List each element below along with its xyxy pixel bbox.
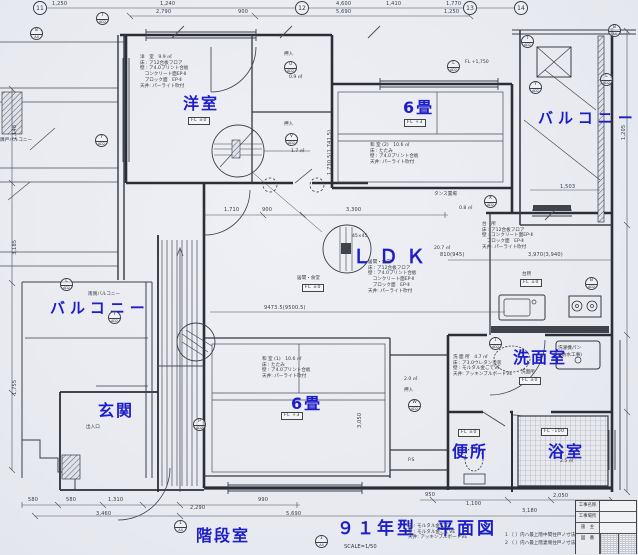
dim: 9473.5(9500.5) (264, 306, 306, 312)
dim: 1,250 (444, 10, 459, 16)
fl-washitsu1: FL +3 (281, 412, 303, 420)
title-block-stamps (618, 534, 636, 554)
symbol-closet-w: WAD2 (408, 399, 421, 412)
symbol-x: XAD2 (484, 195, 497, 208)
stove (569, 296, 601, 317)
fl-ldk: FL ±0 (302, 284, 324, 292)
fl-bath: FL -100 (541, 428, 568, 436)
dim: 1,240 (160, 2, 175, 8)
text-oshiire-v: 押入 (284, 122, 293, 127)
dim-rotated: 3,185 (13, 240, 19, 255)
dim: 2,290 (190, 506, 205, 512)
dim: 1,770 (446, 2, 461, 8)
symbol-y3: YAD2 (108, 311, 121, 324)
dim: 1,100 (466, 502, 481, 508)
symbol-8: 8A4 (30, 27, 43, 40)
dim-rotated: 1,205 (622, 125, 628, 140)
symbol-closet-v: VAD2 (285, 133, 298, 146)
text-tansu: タンス置場 (434, 192, 457, 197)
kitchen-counter (491, 326, 609, 333)
symbol-i2: IAD2 (521, 35, 534, 48)
balcony-right (512, 30, 636, 225)
note-senmen: 洗 面 所 4.7 ㎡ 床 : ア3.0ウレタン塗装 壁 : モルタル金ごてVE… (453, 355, 523, 378)
dim: 900 (238, 10, 248, 16)
dim: 2,050 (553, 494, 568, 500)
dim: 3,300 (346, 208, 361, 214)
area-bath: 2.5 ㎡ (560, 459, 573, 464)
dim: 580 (66, 498, 76, 504)
text-sentakuki: 洗濯機パン (558, 346, 581, 351)
symbol-i1: IAD2 (96, 12, 109, 25)
dim: 580 (28, 498, 38, 504)
dim: 3,460 (96, 512, 111, 518)
title-block: 工事名称 工事場所 施 主 図 番 (575, 500, 637, 554)
symbol-y2: YAD2 (529, 81, 542, 94)
detail-callouts (177, 125, 371, 361)
dim-rotated: 1,730.5(1,741.5) (328, 130, 334, 175)
label-washitsu2: 6畳 (403, 99, 434, 117)
title-block-row-label: 工事名称 (576, 501, 600, 511)
dim: 4,600 (336, 2, 351, 8)
dim: 1,310 (108, 498, 123, 504)
title-block-row-label: 工事場所 (576, 512, 600, 522)
dim: 3,970(3,940) (528, 253, 563, 259)
symbol-t: TAD2 (489, 337, 502, 350)
area-oshiire-v: 1.7 ㎡ (291, 149, 304, 154)
dim: 5,690 (286, 512, 301, 518)
text-oshiire-u: 押入 (284, 52, 293, 57)
symbol-l3: LAD2 (60, 278, 73, 291)
neighbor-unit-lines (0, 42, 126, 266)
dim: 3,180 (522, 509, 537, 515)
note-stair-spec: 床 : モルタル金ごて 壁 : モルタル金ごてVE 天井: アッキンブルボードV… (408, 524, 498, 541)
grid-ref-11: 11 (33, 1, 47, 15)
title-block-row-label: 施 主 (576, 523, 600, 533)
dim: 2,790 (156, 10, 171, 16)
symbol-y1: YAD2 (95, 134, 108, 147)
label-balcony-left: バルコニー (50, 300, 150, 317)
note-yoshitsu: 洋 室 9.9 ㎡ 床 : ア12合板フロア 壁 : ア4.0プリント合板 コン… (140, 55, 235, 89)
area-oshiire-u: 0.9 ㎡ (289, 75, 302, 80)
label-yoshitsu: 洋室 (183, 95, 219, 113)
text-oshiire-w: 押入 (404, 388, 413, 393)
dim: 1,250 (52, 2, 67, 8)
dim: 900 (262, 208, 272, 214)
grid-ref-12: 12 (295, 1, 309, 15)
text-deiriguchi: 出入口 (86, 425, 100, 430)
area-oshiire-w: 2.0 ㎡ (404, 377, 417, 382)
fl-balcony-note: FL +1,750 (465, 60, 489, 65)
text-minami-balcony: 南側バルコニー (88, 292, 120, 297)
text-ima-shokudo: 居間・食堂 (297, 276, 320, 281)
symbol-b2: BAD2 (585, 277, 598, 290)
symbol-p: PAD2 (193, 418, 206, 431)
dim: 1,710 (224, 208, 239, 214)
dim: 1,503 (560, 185, 575, 191)
fl-washitsu2: FL +3 (404, 119, 426, 127)
fl-kitchen: FL ±0 (520, 279, 542, 287)
note-washitsu1: 和 室 (1) 10.6 ㎡ 床 : たたみ 壁 : ア4.0プリント合板 天井… (262, 357, 352, 380)
grid-ref-13: 13 (463, 1, 477, 15)
label-washitsu1: 6畳 (291, 395, 322, 413)
note-ldk: 居間・食堂 床 : ア12合板フロア 壁 : ア4.0プリント合板 コンクリート… (368, 260, 458, 294)
area-tansu: 0.8 ㎡ (459, 206, 472, 211)
symbol-b1: BA4 (608, 24, 621, 37)
symbol-title: 1A4 (315, 535, 328, 548)
symbol-l2: LAD2 (600, 73, 613, 86)
text-daidokoro: 台所 (522, 272, 531, 277)
floor-plan-sheet: 洋室 6畳 バルコニー バルコニー ＬＤＫ 玄関 6畳 洗面室 便所 浴室 階段… (0, 0, 638, 555)
label-benjo: 便所 (452, 443, 488, 461)
dim: 990 (258, 498, 268, 504)
label-kaidanshitsu: 階段室 (196, 527, 250, 545)
text-45x45: 45×45 (352, 234, 368, 239)
columns (263, 178, 324, 192)
note-washitsu2: 和 室 (2) 10.6 ㎡ 床 : たたみ 壁 : ア4.0プリント合板 天井… (370, 143, 460, 166)
fl-yoshitsu: FL ±0 (188, 117, 210, 125)
title-block-row-label: 図 番 (576, 534, 600, 554)
dim-rotated: 1,755 (13, 380, 19, 395)
dim: 810(945) (440, 253, 465, 259)
title-block-stamps (600, 534, 618, 554)
symbol-l1: LAD2 (447, 60, 460, 73)
dim: 5,690 (336, 10, 351, 16)
note-kitchen: 台 所 床 : ア12合板フロア 壁 : コンクリート面EP-Ⅱ ブロック面 E… (482, 222, 572, 251)
grid-ref-14: 14 (514, 1, 528, 15)
dim: 1,410 (386, 2, 401, 8)
symbol-stair: 1A4 (174, 520, 187, 533)
fl-senmen: FL ±0 (519, 377, 541, 385)
dim-rotated: 1,148 (13, 125, 19, 140)
text-sentakuki2: (防水工事) (560, 353, 582, 358)
dim-rotated: 3,050 (358, 413, 364, 428)
scale-note: SCALE=1/50 (344, 545, 377, 551)
area-ldk: 20.7 ㎡ (434, 246, 450, 251)
text-senmenjo: 洗面所 (521, 370, 535, 375)
text-ps: P.S (408, 458, 414, 463)
symbol-closet-u: UAD2 (284, 61, 297, 74)
dim: 950 (425, 493, 435, 499)
label-genkan: 玄関 (98, 402, 134, 420)
staircase (158, 240, 204, 492)
fl-benjo: FL ±0 (458, 429, 480, 437)
